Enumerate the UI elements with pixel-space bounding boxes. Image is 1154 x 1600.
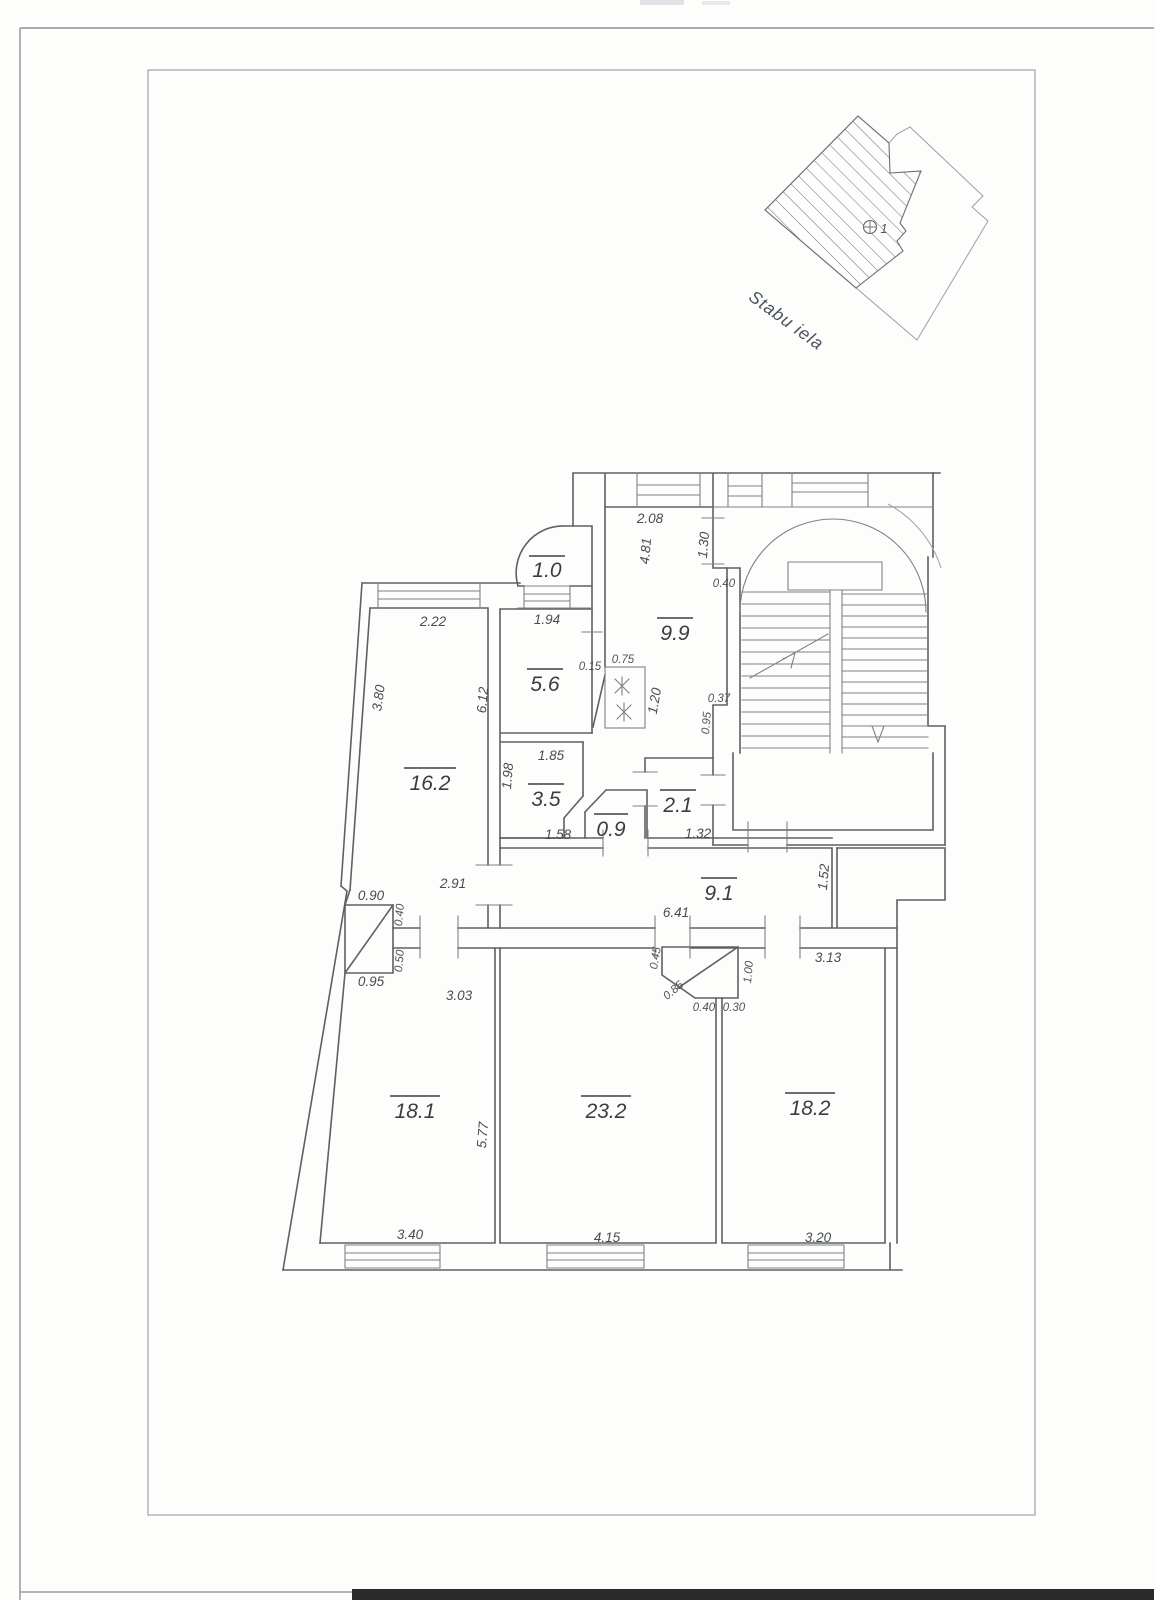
dim-room35-bottom: 1.58 bbox=[545, 827, 572, 842]
up-arrow-icon bbox=[750, 634, 828, 678]
room-label-16-2: 16.2 bbox=[410, 772, 451, 795]
scan-artifacts bbox=[20, 0, 1154, 1600]
dim-shaft1-side-a: 0.40 bbox=[393, 903, 407, 927]
dim-room99-notch: 0.40 bbox=[713, 578, 736, 590]
room-label-2-1: 2.1 bbox=[662, 794, 692, 817]
dim-shaft1-top: 0.90 bbox=[358, 888, 385, 903]
dim-room16-height: 6.12 bbox=[474, 686, 491, 714]
street-label: Stabu iela bbox=[745, 286, 828, 354]
dim-corridor-length: 6.41 bbox=[663, 905, 689, 920]
dim-kitchen-top: 1.94 bbox=[534, 612, 560, 627]
stove-icon bbox=[605, 667, 645, 728]
dim-shaft2-right: 1.00 bbox=[742, 960, 756, 984]
dim-hall21-bottom: 1.32 bbox=[685, 826, 712, 841]
room-label-18-2: 18.2 bbox=[790, 1097, 831, 1120]
room-label-corridor: 9.1 bbox=[704, 882, 733, 905]
site-building-hatch bbox=[765, 116, 921, 288]
dim-room99-left: 4.81 bbox=[637, 537, 654, 564]
room-labels: 1.0 9.9 5.6 16.2 3.5 0.9 2.1 9.1 18.1 23… bbox=[390, 556, 835, 1123]
dim-room181-top: 3.03 bbox=[446, 988, 473, 1003]
dimension-labels: 2.22 1.94 2.08 4.81 1.30 0.40 3.80 6.12 … bbox=[358, 511, 842, 1245]
dim-stove-right: 1.20 bbox=[645, 686, 664, 715]
dim-stove-left: 0.15 bbox=[579, 661, 602, 673]
dim-stair-wall-top: 0.37 bbox=[708, 693, 731, 705]
dim-shaft2-bottom-a: 0.40 bbox=[693, 1002, 716, 1014]
scanned-floor-plan-page: 1 Stabu iela bbox=[0, 0, 1154, 1600]
dim-room182-bottom: 3.20 bbox=[805, 1230, 832, 1245]
dim-shaft2-diag: 0.85 bbox=[661, 979, 686, 1003]
dim-shaft1-bottom: 0.95 bbox=[358, 974, 385, 989]
room-label-kitchen: 5.6 bbox=[530, 673, 560, 696]
room-label-23-2: 23.2 bbox=[585, 1100, 627, 1123]
down-arrow-icon bbox=[872, 726, 884, 742]
dim-room16-slant: 3.80 bbox=[369, 683, 388, 712]
dim-room181-bottom: 3.40 bbox=[397, 1227, 424, 1242]
room-label-3-5: 3.5 bbox=[531, 788, 561, 811]
dim-room99-top: 2.08 bbox=[636, 511, 664, 526]
site-plan: 1 Stabu iela bbox=[745, 116, 988, 354]
windows bbox=[345, 473, 933, 1268]
building-marker-label: 1 bbox=[880, 221, 887, 236]
walls bbox=[283, 473, 945, 1270]
dim-room35-top: 1.85 bbox=[538, 748, 565, 763]
dim-stair-wall-side: 0.95 bbox=[700, 711, 714, 735]
dim-shaft1-side-b: 0.50 bbox=[393, 949, 407, 973]
page-border bbox=[20, 28, 1154, 1600]
dim-room16-top: 2.22 bbox=[419, 614, 447, 629]
floor-plan: 1.0 9.9 5.6 16.2 3.5 0.9 2.1 9.1 18.1 23… bbox=[283, 473, 945, 1270]
dim-shaft2-bottom-b: 0.30 bbox=[723, 1002, 746, 1014]
stair-treads-left bbox=[742, 592, 830, 748]
stair-arch bbox=[740, 519, 926, 612]
room-label-balcony: 1.0 bbox=[532, 559, 562, 582]
dim-stove-top: 0.75 bbox=[612, 654, 635, 666]
stair-treads-right bbox=[842, 594, 928, 748]
room-label-18-1: 18.1 bbox=[395, 1100, 436, 1123]
dim-room181-side: 5.77 bbox=[474, 1121, 491, 1149]
dim-room232-bottom: 4.15 bbox=[594, 1230, 621, 1245]
dim-corridor-right: 1.52 bbox=[815, 863, 832, 891]
door-ticks bbox=[420, 518, 800, 958]
dim-passage-width: 2.91 bbox=[439, 876, 466, 891]
room-label-wc: 0.9 bbox=[596, 818, 626, 841]
stairs bbox=[740, 504, 941, 753]
room-label-9-9: 9.9 bbox=[660, 622, 690, 645]
dim-room182-top: 3.13 bbox=[815, 950, 842, 965]
content-frame bbox=[148, 70, 1035, 1515]
dim-room35-left: 1.98 bbox=[499, 762, 516, 790]
dim-room99-right: 1.30 bbox=[695, 531, 712, 559]
floor-plan-drawing: 1 Stabu iela bbox=[0, 0, 1154, 1600]
